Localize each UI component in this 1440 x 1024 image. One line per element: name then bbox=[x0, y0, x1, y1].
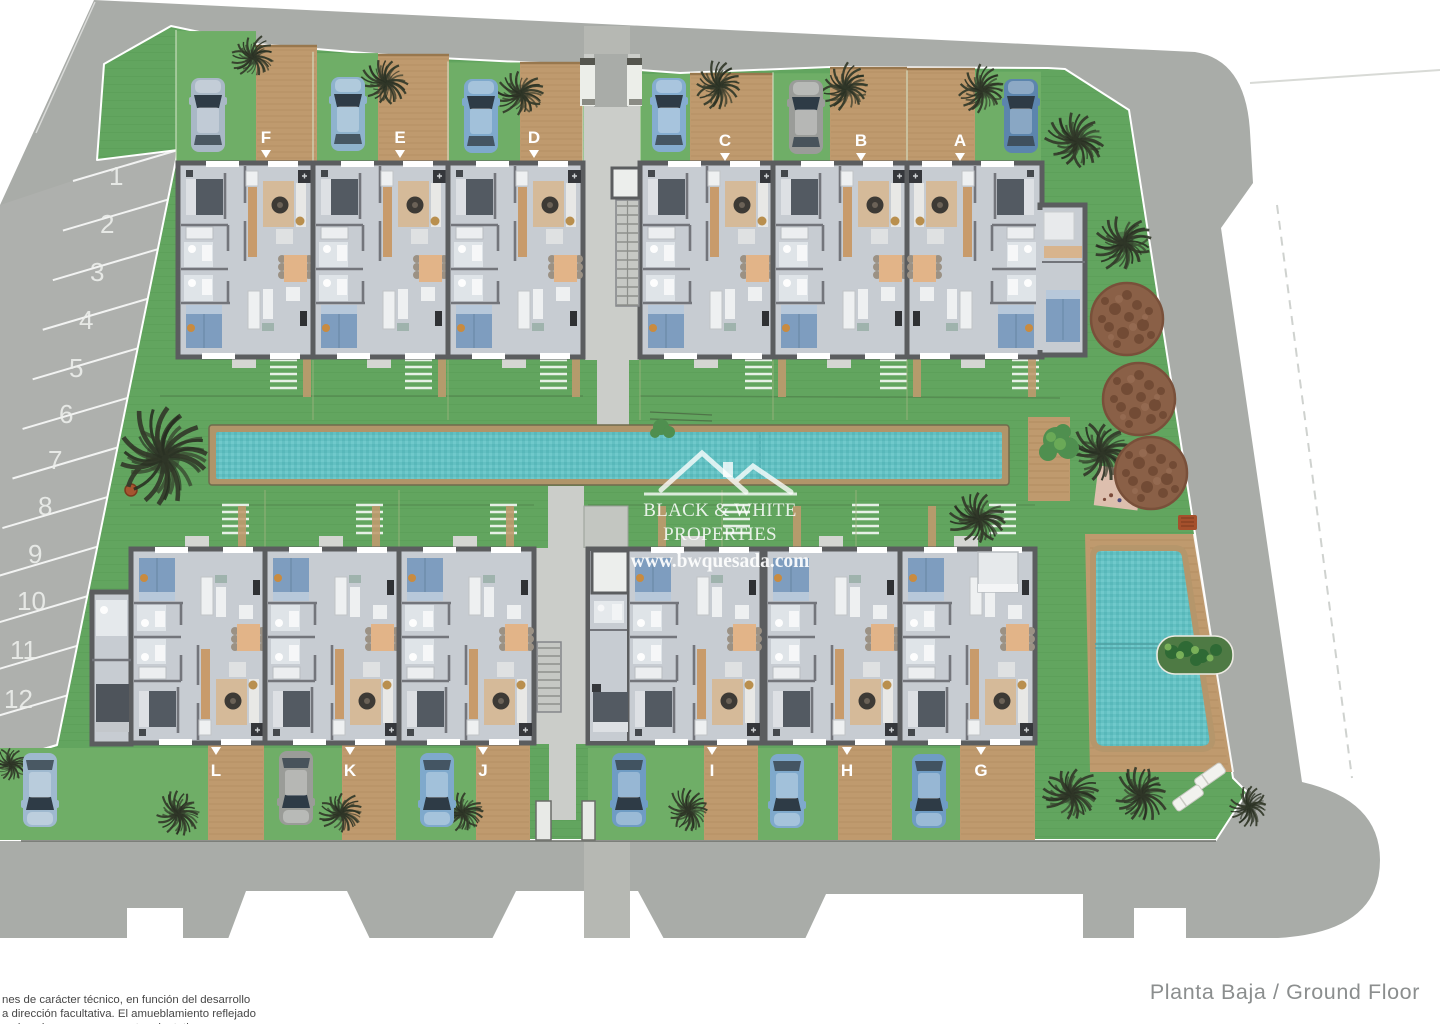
svg-text:5: 5 bbox=[69, 353, 83, 383]
svg-text:a dirección facultativa. El am: a dirección facultativa. El amueblamient… bbox=[2, 1008, 256, 1020]
svg-text:nes de carácter técnico, en fu: nes de carácter técnico, en función del … bbox=[2, 994, 250, 1006]
svg-text:C: C bbox=[719, 131, 731, 150]
svg-text:F: F bbox=[261, 128, 271, 147]
svg-text:K: K bbox=[344, 761, 357, 780]
svg-text:H: H bbox=[841, 761, 853, 780]
svg-text:6: 6 bbox=[59, 399, 73, 429]
svg-text:A: A bbox=[954, 131, 966, 150]
svg-text:B: B bbox=[855, 131, 867, 150]
svg-text:Planta Baja / Ground Floor: Planta Baja / Ground Floor bbox=[1150, 980, 1420, 1004]
svg-text:9: 9 bbox=[28, 539, 42, 569]
svg-text:L: L bbox=[211, 761, 221, 780]
svg-text:E: E bbox=[394, 128, 405, 147]
svg-text:BLACK & WHITE: BLACK & WHITE bbox=[643, 500, 796, 521]
svg-text:2: 2 bbox=[100, 209, 114, 239]
svg-text:10: 10 bbox=[17, 586, 46, 616]
svg-text:4: 4 bbox=[79, 305, 93, 335]
svg-text:1: 1 bbox=[109, 161, 123, 191]
svg-text:8: 8 bbox=[38, 491, 52, 521]
svg-text:PROPERTIES: PROPERTIES bbox=[663, 524, 777, 545]
svg-text:J: J bbox=[478, 761, 487, 780]
svg-text:7: 7 bbox=[48, 445, 62, 475]
svg-text:11: 11 bbox=[10, 635, 37, 665]
svg-text:I: I bbox=[710, 761, 715, 780]
svg-text:www.bwquesada.com: www.bwquesada.com bbox=[631, 551, 810, 572]
svg-text:12: 12 bbox=[4, 684, 33, 714]
svg-text:3: 3 bbox=[90, 257, 104, 287]
svg-text:D: D bbox=[528, 128, 540, 147]
svg-text:G: G bbox=[974, 761, 987, 780]
